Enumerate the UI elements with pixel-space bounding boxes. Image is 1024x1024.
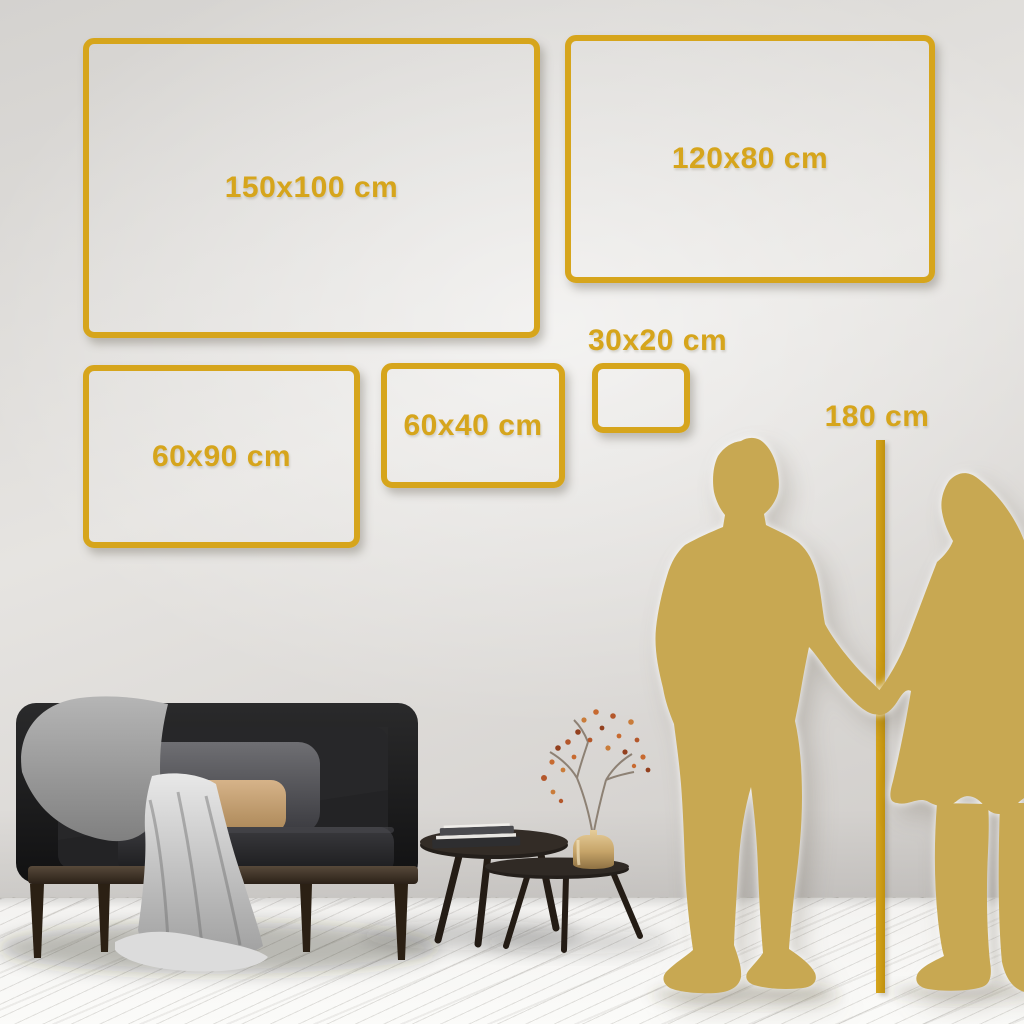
size-guide-scene: 150x100 cm 120x80 cm 60x90 cm 60x40 cm 3… (0, 0, 1024, 1024)
size-label-60x90: 60x90 cm (152, 440, 291, 474)
size-frame-150x100: 150x100 cm (83, 38, 540, 338)
size-label-150x100: 150x100 cm (225, 171, 399, 205)
size-label-120x80: 120x80 cm (672, 142, 828, 176)
height-label: 180 cm (797, 400, 957, 434)
size-frame-60x40: 60x40 cm (381, 363, 565, 488)
wood-floor (0, 897, 1024, 1024)
size-label-60x40: 60x40 cm (403, 409, 542, 443)
size-label-30x20: 30x20 cm (588, 324, 727, 358)
size-frame-30x20 (592, 363, 690, 433)
size-frame-60x90: 60x90 cm (83, 365, 360, 548)
size-frame-120x80: 120x80 cm (565, 35, 935, 283)
height-reference-line (876, 440, 885, 993)
